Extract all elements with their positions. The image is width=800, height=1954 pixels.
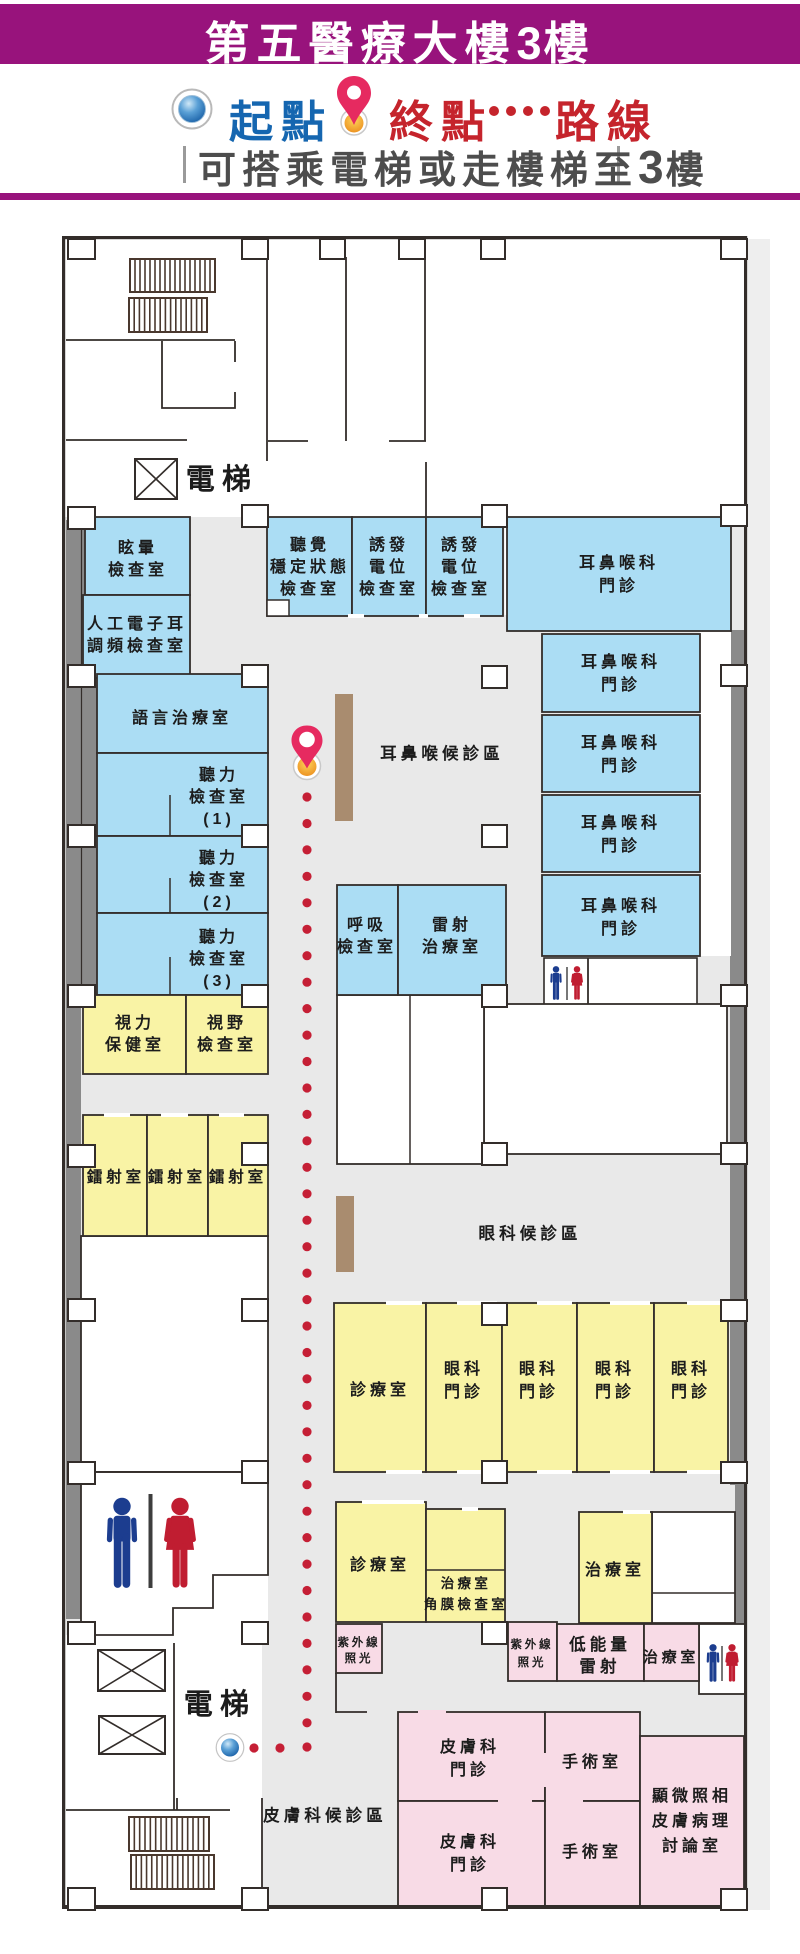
svg-text:門診: 門診 (599, 576, 639, 595)
svg-text:紫外線: 紫外線 (337, 1635, 380, 1649)
svg-text:耳鼻喉科: 耳鼻喉科 (581, 733, 661, 752)
svg-text:檢查室: 檢查室 (280, 579, 340, 598)
svg-text:照光: 照光 (345, 1651, 374, 1665)
svg-text:門診: 門診 (595, 1382, 635, 1401)
svg-text:低能量: 低能量 (568, 1634, 631, 1654)
svg-text:手術室: 手術室 (562, 1752, 622, 1771)
svg-text:電位: 電位 (441, 557, 481, 576)
svg-text:皮膚科候診區: 皮膚科候診區 (263, 1805, 387, 1825)
svg-text:鐳射室: 鐳射室 (87, 1167, 145, 1186)
svg-text:耳鼻喉候診區: 耳鼻喉候診區 (380, 743, 504, 763)
svg-text:耳鼻喉科: 耳鼻喉科 (579, 553, 659, 572)
svg-text:診療室: 診療室 (350, 1555, 410, 1574)
svg-text:門診: 門診 (601, 675, 641, 694)
svg-text:(1): (1) (203, 811, 235, 828)
svg-text:紫外線: 紫外線 (510, 1637, 553, 1651)
svg-text:雷射: 雷射 (579, 1656, 620, 1676)
svg-text:檢查室: 檢查室 (189, 870, 249, 889)
svg-text:門診: 門診 (601, 919, 641, 938)
svg-text:檢查室: 檢查室 (108, 560, 168, 579)
svg-text:誘發: 誘發 (441, 535, 481, 554)
svg-text:檢查室: 檢查室 (189, 949, 249, 968)
svg-text:門診: 門診 (450, 1760, 490, 1779)
svg-text:視力: 視力 (114, 1013, 155, 1032)
svg-text:聽覺: 聽覺 (290, 535, 330, 554)
svg-text:語言治療室: 語言治療室 (132, 708, 232, 727)
svg-text:角膜檢查室: 角膜檢查室 (424, 1596, 508, 1612)
svg-text:人工電子耳: 人工電子耳 (87, 615, 187, 633)
svg-text:照光: 照光 (518, 1655, 547, 1669)
svg-text:保健室: 保健室 (104, 1035, 165, 1054)
svg-text:耳鼻喉科: 耳鼻喉科 (581, 813, 661, 832)
svg-text:門診: 門診 (671, 1382, 711, 1401)
svg-text:眼科: 眼科 (671, 1359, 711, 1378)
svg-text:門診: 門診 (601, 836, 641, 855)
svg-text:診療室: 診療室 (350, 1380, 410, 1399)
svg-text:門診: 門診 (519, 1382, 559, 1401)
svg-text:誘發: 誘發 (369, 535, 409, 554)
svg-text:檢查室: 檢查室 (431, 579, 491, 598)
svg-text:電梯: 電梯 (186, 463, 259, 496)
svg-text:治療室: 治療室 (585, 1560, 645, 1579)
svg-text:(3): (3) (203, 973, 235, 990)
svg-text:聽力: 聽力 (199, 765, 239, 784)
svg-text:皮膚病理: 皮膚病理 (651, 1811, 732, 1830)
svg-text:治療室: 治療室 (422, 937, 482, 956)
svg-text:雷射: 雷射 (432, 915, 472, 934)
svg-text:檢查室: 檢查室 (359, 579, 419, 598)
svg-text:門診: 門診 (601, 756, 641, 775)
svg-text:電位: 電位 (369, 557, 409, 576)
svg-text:顯微照相: 顯微照相 (652, 1786, 732, 1805)
svg-text:檢查室: 檢查室 (189, 787, 249, 806)
svg-text:耳鼻喉科: 耳鼻喉科 (581, 652, 661, 671)
svg-text:皮膚科: 皮膚科 (439, 1737, 500, 1756)
svg-text:聽力: 聽力 (199, 927, 239, 946)
svg-text:治療室: 治療室 (643, 1648, 699, 1666)
svg-text:電梯: 電梯 (184, 1688, 257, 1721)
svg-text:視野: 視野 (206, 1013, 247, 1032)
svg-text:鐳射室: 鐳射室 (148, 1167, 206, 1186)
svg-text:呼吸: 呼吸 (347, 916, 387, 934)
svg-text:門診: 門診 (450, 1855, 490, 1874)
svg-text:眼科: 眼科 (444, 1359, 484, 1378)
svg-text:耳鼻喉科: 耳鼻喉科 (581, 896, 661, 915)
svg-text:眩暈: 眩暈 (118, 538, 158, 557)
svg-text:鐳射室: 鐳射室 (209, 1167, 267, 1186)
svg-text:眼科候診區: 眼科候診區 (478, 1223, 581, 1243)
svg-text:(2): (2) (203, 894, 235, 911)
svg-text:治療室: 治療室 (441, 1575, 492, 1591)
svg-text:聽力: 聽力 (199, 848, 239, 867)
svg-text:眼科: 眼科 (595, 1359, 635, 1378)
svg-text:皮膚科: 皮膚科 (439, 1832, 500, 1851)
svg-text:穩定狀態: 穩定狀態 (270, 557, 350, 576)
svg-text:討論室: 討論室 (662, 1836, 722, 1855)
svg-text:調頻檢查室: 調頻檢查室 (87, 636, 187, 655)
svg-text:門診: 門診 (444, 1382, 484, 1401)
svg-text:眼科: 眼科 (519, 1359, 559, 1378)
svg-text:檢查室: 檢查室 (197, 1035, 257, 1054)
svg-text:檢查室: 檢查室 (337, 937, 397, 956)
svg-text:手術室: 手術室 (562, 1842, 622, 1861)
